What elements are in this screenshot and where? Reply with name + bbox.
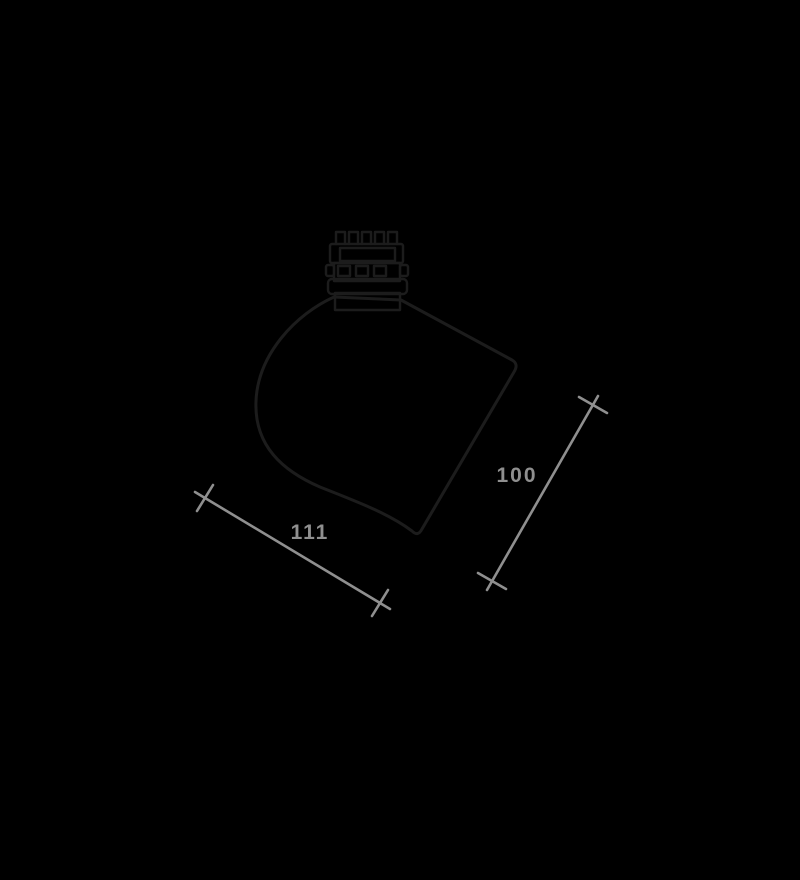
dimension-100: 100 — [478, 396, 607, 590]
dimension-111-tick-right — [372, 590, 388, 616]
adapter-contact-left — [338, 266, 350, 276]
adapter-teeth — [336, 232, 397, 244]
adapter-neck — [335, 293, 400, 310]
adapter-top-plate-inner — [340, 248, 395, 261]
spotlight-body-outline — [256, 297, 516, 534]
dimension-100-tick-top — [579, 397, 607, 413]
adapter-contact-middle — [356, 266, 368, 276]
dimension-100-line — [487, 396, 598, 590]
dimension-111-line — [195, 492, 390, 609]
dimension-100-label: 100 — [496, 464, 537, 487]
dimension-111-tick-left — [197, 485, 213, 511]
spotlight-fixture — [256, 232, 516, 534]
adapter-side-tab-left — [326, 265, 334, 276]
adapter-side-tab-right — [400, 265, 408, 276]
drawing-canvas: 100 111 — [0, 0, 800, 880]
dimension-100-tick-bottom — [478, 573, 506, 589]
dimension-drawing-svg: 100 111 — [0, 0, 800, 880]
adapter-contact-right — [374, 266, 386, 276]
dimension-111-label: 111 — [291, 521, 330, 544]
